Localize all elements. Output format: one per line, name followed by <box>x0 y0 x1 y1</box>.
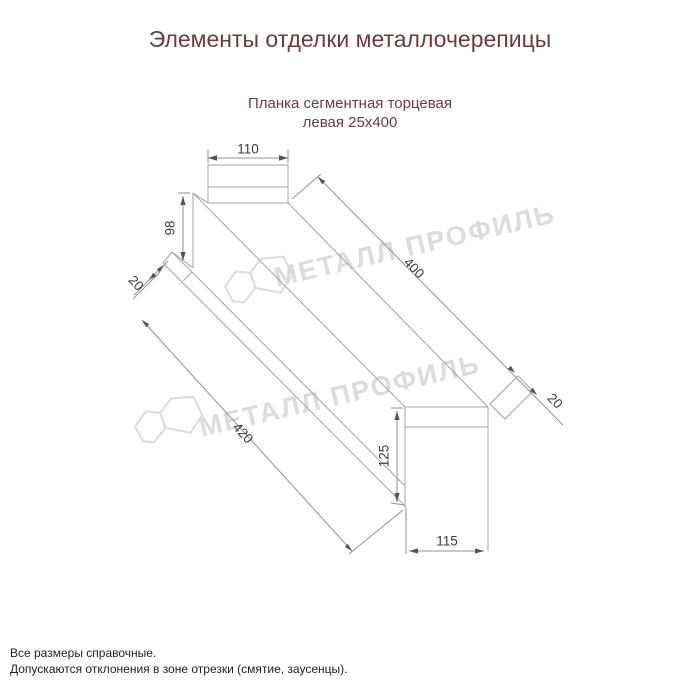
note-dimensions-reference: Все размеры справочные. <box>10 646 156 660</box>
part-outline <box>163 165 533 551</box>
page: МЕТАЛЛ ПРОФИЛЬ МЕТАЛЛ ПРОФИЛЬ <box>0 0 700 700</box>
dim-right-height: 125 <box>377 445 392 468</box>
page-title: Элементы отделки металлочерепицы <box>0 26 700 53</box>
dimension-lines <box>133 150 563 554</box>
dim-left-height: 98 <box>163 220 178 235</box>
dimension-arrows <box>142 155 537 553</box>
part-name-line1: Планка сегментная торцевая <box>0 95 700 112</box>
note-cut-zone-tolerance: Допускаются отклонения в зоне отрезки (с… <box>10 662 347 676</box>
dim-bottom-width: 115 <box>436 534 458 549</box>
part-name-line2: левая 25х400 <box>0 114 700 131</box>
dim-top-width: 110 <box>237 142 259 157</box>
